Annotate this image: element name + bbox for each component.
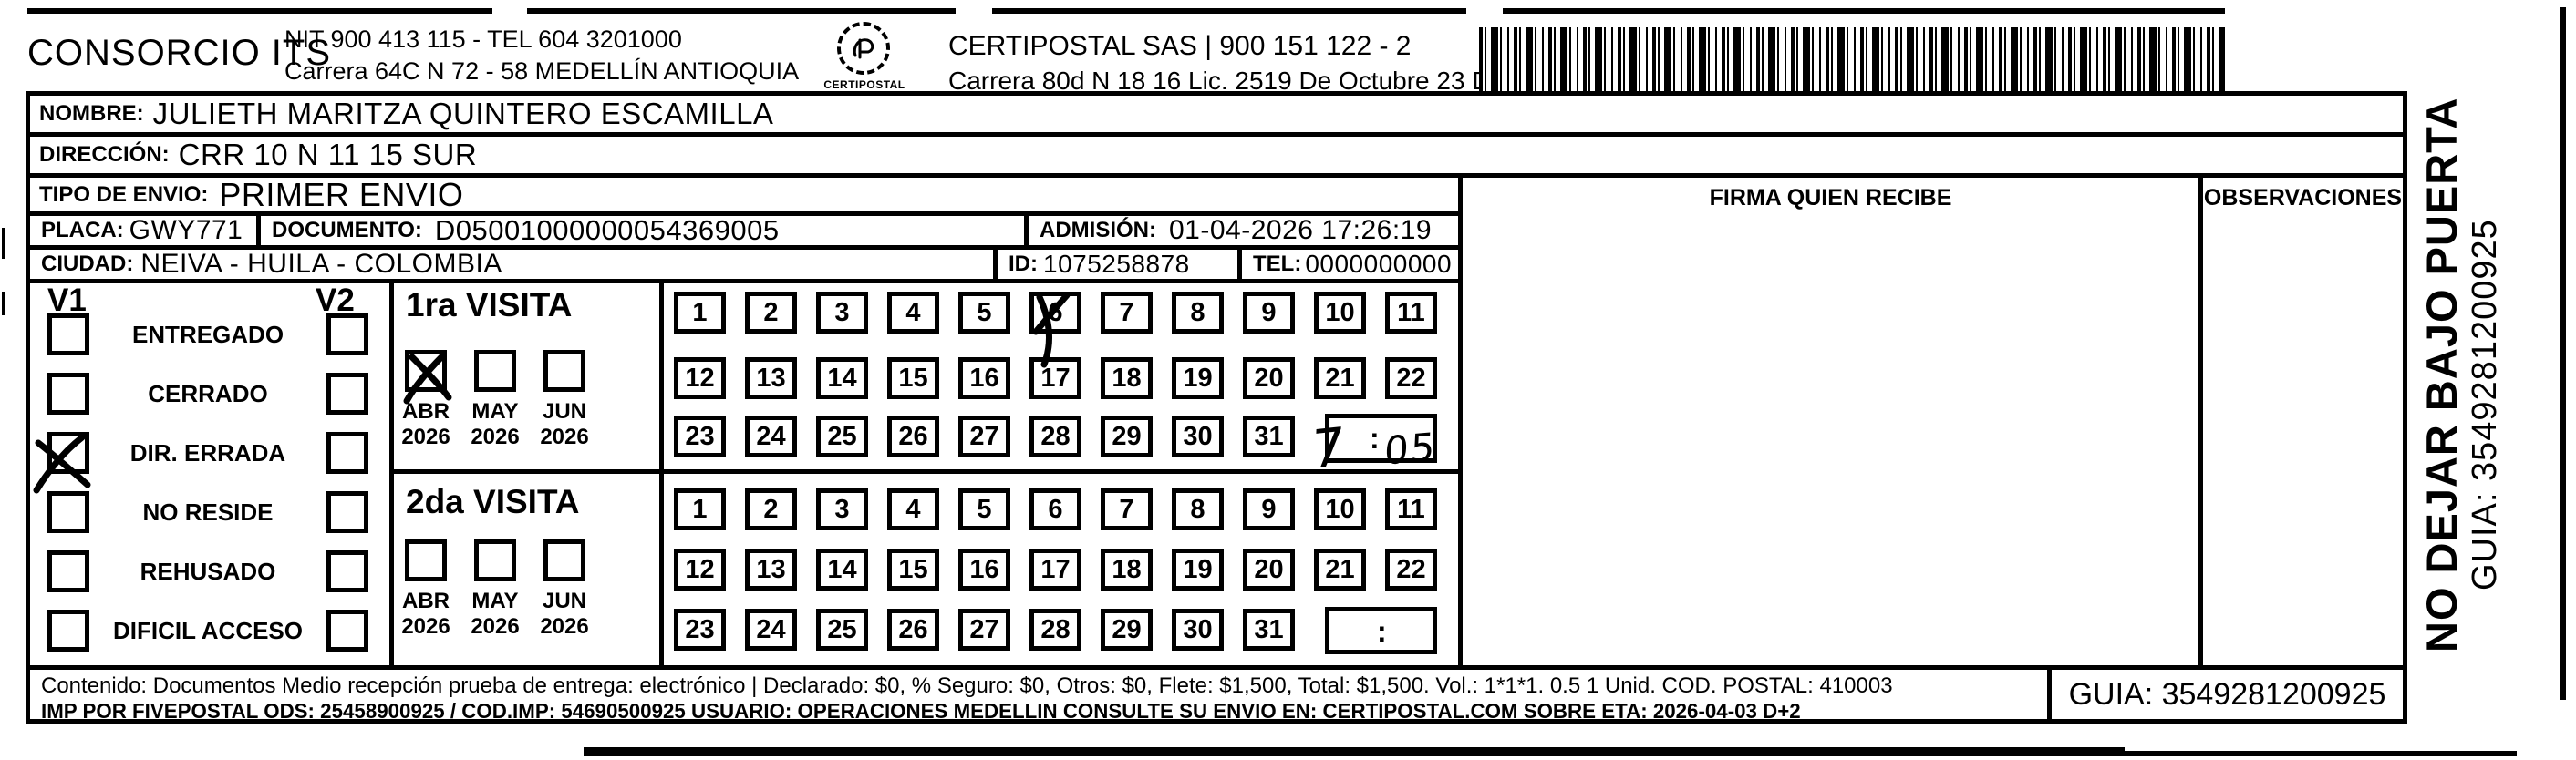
direccion-value: CRR 10 N 11 15 SUR: [179, 138, 478, 172]
day-23-box: 23: [674, 416, 726, 457]
month-checkbox-abr: [405, 350, 447, 392]
day-3-box: 3: [816, 488, 868, 530]
day-9-box: 9: [1243, 488, 1295, 530]
ciudad-value: NEIVA - HUILA - COLOMBIA: [140, 249, 502, 280]
month-item-jun: JUN2026: [541, 350, 588, 450]
nombre-value: JULIETH MARITZA QUINTERO ESCAMILLA: [153, 97, 774, 131]
day-12-box: 12: [674, 357, 726, 399]
nombre-row: NOMBRE: JULIETH MARITZA QUINTERO ESCAMIL…: [26, 91, 2407, 137]
day-14-box: 14: [816, 357, 868, 399]
day-8-box: 8: [1172, 488, 1224, 530]
v1-checkbox-cerrado: [47, 373, 89, 415]
guia-number-box: GUIA: 3549281200925: [2047, 670, 2403, 719]
ciudad-id-tel-row: CIUDAD: NEIVA - HUILA - COLOMBIA ID: 107…: [26, 245, 1463, 283]
sender-nit-line: NIT 900 413 115 - TEL 604 3201000: [284, 24, 799, 56]
day-20-box: 20: [1243, 549, 1295, 591]
footer-content-line: Contenido: Documentos Medio recepción pr…: [41, 673, 2047, 699]
day-19-box: 19: [1172, 357, 1224, 399]
id-label: ID:: [1009, 252, 1038, 277]
day-row: 232425262728293031: [674, 416, 1295, 457]
delivery-guide-scan: CONSORCIO ITS NIT 900 413 115 - TEL 604 …: [0, 0, 2576, 760]
time-colon: :: [1370, 422, 1380, 456]
second-visit-title: 2da VISITA: [406, 483, 580, 521]
scan-artifact-top-line: [527, 8, 956, 14]
ciudad-cell: CIUDAD: NEIVA - HUILA - COLOMBIA: [30, 250, 993, 279]
handwritten-minutes: 05: [1383, 424, 1438, 473]
v1-checkbox-entregado: [47, 313, 89, 355]
month-label: ABR: [402, 399, 450, 425]
month-label: ABR: [402, 589, 450, 614]
firma-quien-recibe-header: FIRMA QUIEN RECIBE: [1710, 185, 1952, 211]
first-visit-month-group: ABR2026MAY2026JUN2026: [402, 350, 588, 450]
status-row: DIFICIL ACCESO: [47, 610, 368, 652]
tel-label: TEL:: [1253, 252, 1301, 277]
v1-checkbox-dificil-acceso: [47, 610, 89, 652]
side-note-guia: GUIA: 3549281200925: [2466, 219, 2505, 591]
day-8-box: 8: [1172, 292, 1224, 334]
day-30-box: 30: [1172, 609, 1224, 651]
placa-value: GWY771: [129, 215, 243, 246]
day-26-box: 26: [887, 416, 939, 457]
tipo-envio-value: PRIMER ENVIO: [219, 176, 463, 214]
tipo-envio-label: TIPO DE ENVIO:: [39, 182, 208, 208]
footer-text-cell: Contenido: Documentos Medio recepción pr…: [30, 670, 2047, 719]
day-25-box: 25: [816, 416, 868, 457]
day-29-box: 29: [1101, 609, 1153, 651]
day-18-box: 18: [1101, 549, 1153, 591]
day-row: 1234567891011: [674, 292, 1437, 334]
day-13-box: 13: [745, 357, 797, 399]
direccion-row: DIRECCIÓN: CRR 10 N 11 15 SUR: [26, 132, 2407, 178]
v2-checkbox-rehusado: [326, 550, 368, 592]
scan-artifact-bottom-line: [2125, 751, 2517, 756]
day-row: 1213141516171819202122: [674, 549, 1437, 591]
scan-artifact-left-dash: [2, 292, 5, 315]
day-2-box: 2: [745, 488, 797, 530]
day-29-box: 29: [1101, 416, 1153, 457]
month-year: 2026: [471, 614, 519, 640]
documento-label: DOCUMENTO:: [272, 218, 422, 243]
firma-quien-recibe-column: FIRMA QUIEN RECIBE: [1458, 173, 2203, 670]
day-9-box: 9: [1243, 292, 1295, 334]
sender-contact-block: NIT 900 413 115 - TEL 604 3201000 Carrer…: [284, 24, 799, 87]
status-row: REHUSADO: [47, 550, 368, 592]
carrier-block: CERTIPOSTAL SAS | 900 151 122 - 2 Carrer…: [948, 29, 1568, 98]
v2-checkbox-cerrado: [326, 373, 368, 415]
day-10-box: 10: [1314, 292, 1366, 334]
first-visit-title: 1ra VISITA: [406, 286, 572, 324]
month-label: MAY: [471, 399, 518, 425]
certipostal-stamp-icon: [837, 22, 890, 75]
v1-checkbox-rehusado: [47, 550, 89, 592]
day-25-box: 25: [816, 609, 868, 651]
barcode: [1479, 27, 2225, 91]
v2-checkbox-dificil-acceso: [326, 610, 368, 652]
day-11-box: 11: [1385, 488, 1437, 530]
month-item-may: MAY2026: [471, 539, 519, 640]
nombre-label: NOMBRE:: [39, 101, 144, 127]
scan-artifact-right-line: [2560, 7, 2566, 700]
status-row: ENTREGADO: [47, 313, 368, 355]
day-11-box: 11: [1385, 292, 1437, 334]
month-checkbox-abr: [405, 539, 447, 581]
month-label: JUN: [543, 399, 586, 425]
placa-cell: PLACA: GWY771: [30, 216, 256, 245]
day-18-box: 18: [1101, 357, 1153, 399]
month-year: 2026: [540, 614, 588, 640]
scan-artifact-top-line: [1503, 8, 2225, 14]
month-year: 2026: [401, 425, 450, 450]
observaciones-column: OBSERVACIONES: [2198, 173, 2407, 670]
month-item-abr: ABR2026: [402, 539, 450, 640]
day-2-box: 2: [745, 292, 797, 334]
visit-month-column: 1ra VISITA ABR2026MAY2026JUN2026 2da VIS…: [389, 279, 664, 670]
direccion-label: DIRECCIÓN:: [39, 142, 170, 168]
month-checkbox-jun: [543, 539, 585, 581]
day-10-box: 10: [1314, 488, 1366, 530]
stamp-caption: CERTIPOSTAL: [817, 78, 912, 91]
month-checkbox-may: [474, 350, 516, 392]
status-row: CERRADO: [47, 373, 368, 415]
admision-label: ADMISIÓN:: [1040, 218, 1156, 243]
id-cell: ID: 1075258878: [993, 250, 1237, 279]
day-28-box: 28: [1029, 416, 1081, 457]
tipo-envio-row: TIPO DE ENVIO: PRIMER ENVIO: [26, 173, 1463, 216]
v1-checkbox-dir-errada: [47, 432, 89, 474]
ciudad-label: CIUDAD:: [41, 252, 133, 277]
scan-artifact-left-dash: [2, 228, 5, 259]
month-year: 2026: [401, 614, 450, 640]
day-16-box: 16: [958, 549, 1010, 591]
day-24-box: 24: [745, 609, 797, 651]
scan-artifact-bottom-line: [584, 747, 2125, 756]
day-15-box: 15: [887, 549, 939, 591]
day-14-box: 14: [816, 549, 868, 591]
day-30-box: 30: [1172, 416, 1224, 457]
second-visit-months: 2da VISITA ABR2026MAY2026JUN2026: [389, 474, 659, 670]
day-3-box: 3: [816, 292, 868, 334]
status-label: CERRADO: [89, 380, 326, 408]
scan-artifact-top-line: [992, 8, 1466, 14]
v2-checkbox-no-reside: [326, 491, 368, 533]
day-31-box: 31: [1243, 609, 1295, 651]
day-6-box: 6: [1029, 292, 1081, 334]
day-13-box: 13: [745, 549, 797, 591]
side-note-no-dejar: NO DEJAR BAJO PUERTA: [2416, 98, 2467, 652]
posthorn-icon: [848, 33, 879, 64]
day-1-box: 1: [674, 488, 726, 530]
handwritten-hour: 7: [1310, 416, 1346, 481]
day-24-box: 24: [745, 416, 797, 457]
status-label: NO RESIDE: [89, 498, 326, 527]
month-item-abr: ABR2026: [402, 350, 450, 450]
day-12-box: 12: [674, 549, 726, 591]
day-17-box: 17: [1029, 357, 1081, 399]
status-row: DIR. ERRADA: [47, 432, 368, 474]
day-6-box: 6: [1029, 488, 1081, 530]
day-row: 232425262728293031: [674, 609, 1295, 651]
scan-artifact-top-line: [27, 8, 492, 14]
admision-value: 01-04-2026 17:26:19: [1169, 215, 1432, 246]
month-year: 2026: [540, 425, 588, 450]
month-item-may: MAY2026: [471, 350, 519, 450]
sender-address-line: Carrera 64C N 72 - 58 MEDELLÍN ANTIOQUIA: [284, 56, 799, 87]
day-31-box: 31: [1243, 416, 1295, 457]
day-22-box: 22: [1385, 549, 1437, 591]
day-row: 1234567891011: [674, 488, 1437, 530]
second-visit-month-group: ABR2026MAY2026JUN2026: [402, 539, 588, 640]
day-21-box: 21: [1314, 357, 1366, 399]
day-21-box: 21: [1314, 549, 1366, 591]
month-checkbox-may: [474, 539, 516, 581]
day-26-box: 26: [887, 609, 939, 651]
status-checklist: V1 V2 ENTREGADOCERRADODIR. ERRADANO RESI…: [26, 279, 394, 670]
day-7-box: 7: [1101, 292, 1153, 334]
day-5-box: 5: [958, 488, 1010, 530]
day-7-box: 7: [1101, 488, 1153, 530]
first-visit-months: 1ra VISITA ABR2026MAY2026JUN2026: [389, 279, 659, 474]
documento-value: D05001000000054369005: [435, 214, 780, 247]
footer-row: Contenido: Documentos Medio recepción pr…: [26, 665, 2407, 724]
day-22-box: 22: [1385, 357, 1437, 399]
day-row: 1213141516171819202122: [674, 357, 1437, 399]
day-17-box: 17: [1029, 549, 1081, 591]
day-19-box: 19: [1172, 549, 1224, 591]
v1-checkbox-no-reside: [47, 491, 89, 533]
second-visit-time-box: :: [1325, 607, 1437, 654]
footer-imp-line: IMP POR FIVEPOSTAL ODS: 25458900925 / CO…: [41, 699, 1987, 719]
visits-section: V1 V2 ENTREGADOCERRADODIR. ERRADANO RESI…: [26, 279, 1463, 670]
day-4-box: 4: [887, 292, 939, 334]
documento-cell: DOCUMENTO: D05001000000054369005: [256, 216, 1024, 245]
id-value: 1075258878: [1043, 250, 1190, 279]
status-label: REHUSADO: [89, 558, 326, 586]
month-checkbox-jun: [543, 350, 585, 392]
day-27-box: 27: [958, 609, 1010, 651]
day-23-box: 23: [674, 609, 726, 651]
day-16-box: 16: [958, 357, 1010, 399]
day-4-box: 4: [887, 488, 939, 530]
v2-checkbox-entregado: [326, 313, 368, 355]
placa-label: PLACA:: [41, 218, 124, 243]
day-15-box: 15: [887, 357, 939, 399]
day-28-box: 28: [1029, 609, 1081, 651]
status-row: NO RESIDE: [47, 491, 368, 533]
tel-value: 0000000000: [1305, 250, 1452, 279]
admision-cell: ADMISIÓN: 01-04-2026 17:26:19: [1024, 216, 1458, 245]
month-year: 2026: [471, 425, 519, 450]
observaciones-header: OBSERVACIONES: [2204, 185, 2402, 211]
v2-checkbox-dir-errada: [326, 432, 368, 474]
time-colon: :: [1377, 615, 1387, 649]
day-5-box: 5: [958, 292, 1010, 334]
status-label: ENTREGADO: [89, 321, 326, 349]
placa-documento-admision-row: PLACA: GWY771 DOCUMENTO: D05001000000054…: [26, 211, 1463, 250]
month-item-jun: JUN2026: [541, 539, 588, 640]
carrier-line: CERTIPOSTAL SAS | 900 151 122 - 2: [948, 29, 1568, 64]
day-27-box: 27: [958, 416, 1010, 457]
status-label: DIR. ERRADA: [89, 439, 326, 467]
tel-cell: TEL: 0000000000: [1237, 250, 1458, 279]
month-label: JUN: [543, 589, 586, 614]
second-visit-day-grid: : 12345678910111213141516171819202122232…: [659, 474, 1463, 670]
day-1-box: 1: [674, 292, 726, 334]
month-label: MAY: [471, 589, 518, 614]
status-label: DIFICIL ACCESO: [89, 617, 326, 645]
day-20-box: 20: [1243, 357, 1295, 399]
